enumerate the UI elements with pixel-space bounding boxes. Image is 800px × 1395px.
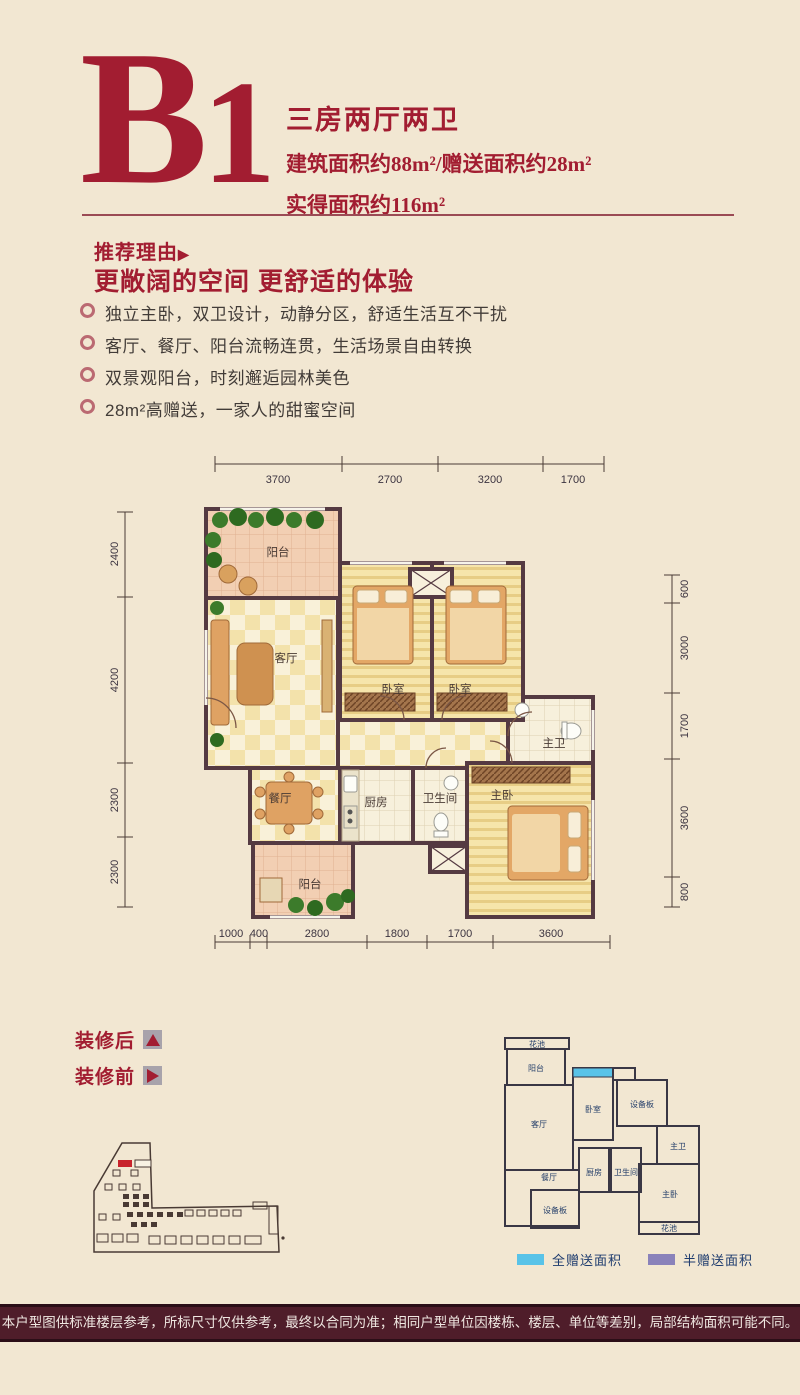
dim-label: 2700 [378,474,402,486]
triangle-right-badge [143,1066,162,1085]
site-key-plan [85,1138,300,1288]
mini-label-flower-top: 花池 [529,1039,545,1049]
room-label-living: 客厅 [275,651,298,665]
dim-label: 1700 [448,928,472,940]
bullet-text: 28m²高赠送，一家人的甜蜜空间 [105,396,356,421]
bullet-text: 独立主卧，双卫设计，动静分区，舒适生活互不干扰 [105,300,508,325]
mini-floorplan: 花池 阳台 客厅 卧室 设备板 主卫 餐厅 厨房 卫生间 主卧 设备板 花池 [493,1032,708,1237]
mini-shaft [613,1068,635,1080]
list-item: 双景观阳台，时刻邂逅园林美色 [80,364,508,396]
half-gift-label: 半赠送面积 [683,1250,753,1269]
recommend-title-arrow-icon: ▶ [178,246,190,262]
gift-area-legend: 全赠送面积 半赠送面积 [517,1250,753,1269]
dim-label: 800 [679,883,691,901]
unit-code: B1 [80,22,276,214]
dim-label: 3600 [679,806,691,830]
triangle-up-icon [146,1034,160,1046]
dim-label: 3000 [679,636,691,660]
room-label-dining: 餐厅 [269,791,292,805]
header-divider [82,214,734,216]
mini-bedroom-gift-strip [573,1068,613,1077]
full-gift-swatch [517,1254,544,1265]
dim-label: 2400 [110,542,121,566]
bullet-ring-icon [80,335,95,350]
disclaimer-bar: 本户型图供标准楼层参考，所标尺寸仅供参考，最终以合同为准；相同户型单位因楼栋、楼… [0,1304,800,1342]
dim-label: 4200 [110,668,121,692]
dims-bottom: 1000 400 2800 1800 1700 3600 [215,928,610,949]
unit-code-number: 1 [202,51,276,215]
room-label-bath: 卫生间 [423,791,458,805]
list-item: 独立主卧，双卫设计，动静分区，舒适生活互不干扰 [80,300,508,332]
dim-label: 2300 [110,860,121,884]
dim-label: 3700 [266,474,290,486]
list-item: 客厅、餐厅、阳台流畅连贯，生活场景自由转换 [80,332,508,364]
room-label-balcony-bottom: 阳台 [299,877,322,891]
triangle-right-icon [147,1069,159,1083]
before-decoration-text: 装修前 [75,1062,135,1089]
flyer-page: B1 三房两厅两卫 建筑面积约88m²/赠送面积约28m² 实得面积约116m²… [0,0,800,1395]
dim-label: 2800 [305,928,329,940]
room-label-master-bed: 主卧 [491,789,514,802]
site-units-filled [123,1194,285,1240]
after-decoration-label: 装修后 [75,1026,162,1053]
mini-label-kitchen: 厨房 [586,1167,602,1177]
dim-label: 1700 [561,474,585,486]
recommend-title-text: 推荐理由 [94,242,178,264]
triangle-up-badge [143,1030,162,1049]
dim-label: 1000 [219,928,243,940]
bullet-ring-icon [80,367,95,382]
dims-left: 2400 4200 2300 2300 [110,512,133,907]
mini-label-bath: 卫生间 [614,1167,638,1177]
unit-summary: 三房两厅两卫 建筑面积约88m²/赠送面积约28m² 实得面积约116m² [286,98,591,219]
room-label-master-bath: 主卫 [543,737,566,750]
bullet-ring-icon [80,303,95,318]
room-label-bedroom-b: 卧室 [449,682,472,696]
room-label-balcony-top: 阳台 [267,545,290,559]
after-decoration-text: 装修后 [75,1026,135,1053]
mini-label-bedroom: 卧室 [585,1104,601,1114]
dim-label: 2300 [110,788,121,812]
dim-label: 3600 [539,928,563,940]
list-item: 28m²高赠送，一家人的甜蜜空间 [80,396,508,428]
unit-type-label: 三房两厅两卫 [286,98,591,137]
dims-right: 600 3000 1700 3600 800 [664,575,691,907]
bullet-ring-icon [80,399,95,414]
selling-points-list: 独立主卧，双卫设计，动静分区，舒适生活互不干扰 客厅、餐厅、阳台流畅连贯，生活场… [80,300,508,428]
mini-label-dining: 餐厅 [541,1173,557,1182]
dim-label: 1700 [679,714,691,738]
mini-label-equip-bottom: 设备板 [543,1205,567,1215]
room-label-bedroom-a: 卧室 [382,682,405,696]
mini-label-flower-bottom: 花池 [661,1223,677,1233]
bullet-text: 客厅、餐厅、阳台流畅连贯，生活场景自由转换 [105,332,473,357]
dims-top: 3700 2700 3200 1700 [215,456,604,486]
mini-label-master-bath: 主卫 [670,1141,686,1151]
dim-label: 3200 [478,474,502,486]
before-decoration-label: 装修前 [75,1062,162,1089]
mini-label-master-bed: 主卧 [662,1189,678,1199]
half-gift-swatch [648,1254,675,1265]
mini-label-balcony: 阳台 [528,1063,544,1073]
main-floorplan: 阳台 客厅 卧室 卧室 主卫 餐厅 厨房 卫生间 主卧 阳台 3700 2700… [110,450,710,970]
highlighted-unit-marker [118,1160,132,1167]
full-gift-label: 全赠送面积 [552,1250,622,1269]
mini-label-living: 客厅 [531,1119,547,1129]
dim-label: 400 [250,928,268,940]
recommend-subtitle: 更敞阔的空间 更舒适的体验 [94,262,414,298]
bullet-text: 双景观阳台，时刻邂逅园林美色 [105,364,350,389]
room-label-kitchen: 厨房 [365,796,388,809]
dim-label: 1800 [385,928,409,940]
mini-label-equip-top: 设备板 [630,1099,654,1109]
unit-code-letter: B [80,11,202,224]
unit-area-line1: 建筑面积约88m²/赠送面积约28m² [286,148,591,178]
mini-room-bedroom [573,1068,613,1140]
recommend-title: 推荐理由▶ [94,236,190,265]
dim-label: 600 [679,580,691,598]
